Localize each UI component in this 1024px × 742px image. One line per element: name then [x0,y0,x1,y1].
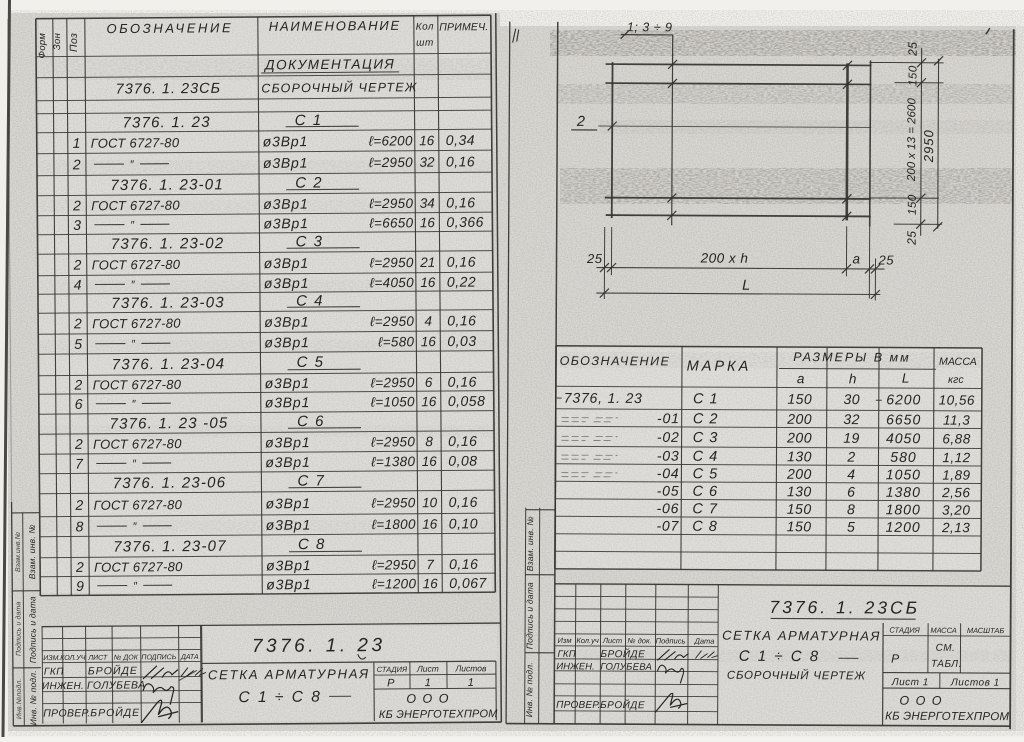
svg-text:С 5: С 5 [297,354,325,371]
svg-text:″: ″ [132,398,137,410]
svg-text:С 1 ÷ С 8: С 1 ÷ С 8 [238,688,322,706]
svg-text:8: 8 [847,501,855,517]
svg-text:4: 4 [424,314,432,329]
svg-text:9: 9 [76,578,84,594]
svg-text:РАЗМЕРЫ В мм: РАЗМЕРЫ В мм [793,350,910,365]
svg-text:ГКП: ГКП [557,649,576,660]
svg-text:ОБОЗНАЧЕНИЕ: ОБОЗНАЧЕНИЕ [560,354,671,369]
svg-text:7376. 1. 23 -05: 7376. 1. 23 -05 [109,415,228,433]
svg-text:0,22: 0,22 [447,274,476,290]
svg-text:2,13: 2,13 [941,520,970,535]
svg-text:″: ″ [132,458,137,470]
svg-text:0,34: 0,34 [446,132,475,148]
svg-text:0,16: 0,16 [448,374,477,390]
svg-text:10: 10 [422,495,438,510]
svg-text:-05: -05 [657,483,680,499]
svg-text:L: L [902,371,910,386]
svg-text:ГОСТ 6727-80: ГОСТ 6727-80 [92,316,181,332]
svg-text:Форм: Форм [37,33,48,59]
svg-text:150: 150 [787,518,812,534]
svg-text:КОЛ.УЧ: КОЛ.УЧ [60,655,86,662]
svg-text:2,56: 2,56 [941,485,970,500]
svg-text:2: 2 [73,315,82,331]
svg-text:С 3: С 3 [693,430,719,446]
svg-text:150: 150 [787,391,812,407]
svg-text:7376. 1. 23-06: 7376. 1. 23-06 [113,474,227,492]
svg-text:ø3Вр1: ø3Вр1 [265,394,310,410]
svg-text:7376. 1. 23-03: 7376. 1. 23-03 [111,294,225,312]
svg-text:2: 2 [73,257,82,273]
svg-text:Лист: Лист [602,636,622,645]
svg-text:ИЗМ.: ИЗМ. [43,655,60,662]
svg-text:4: 4 [74,277,82,293]
svg-text:БРОЙДЕ: БРОЙДЕ [600,698,645,711]
svg-text:2: 2 [74,436,83,452]
svg-text:Зон: Зон [52,32,63,50]
svg-text:10,56: 10,56 [939,393,975,408]
svg-text:С 2: С 2 [693,411,719,427]
svg-text:ОБОЗНАЧЕНИЕ: ОБОЗНАЧЕНИЕ [106,20,233,36]
svg-text:4050: 4050 [886,430,921,446]
svg-text:Подпись и дата: Подпись и дата [27,596,38,663]
svg-text:ГОСТ 6727-80: ГОСТ 6727-80 [92,257,181,273]
svg-text:СЕТКА АРМАТУРНАЯ: СЕТКА АРМАТУРНАЯ [722,628,881,644]
svg-text:ГОСТ 6727-80: ГОСТ 6727-80 [93,377,182,393]
svg-text:8: 8 [76,518,84,534]
svg-text:ø3Вр1: ø3Вр1 [265,375,310,391]
svg-text:7376. 1. 23: 7376. 1. 23 [122,114,210,132]
svg-text:11,3: 11,3 [943,413,970,428]
svg-text:С 8: С 8 [298,536,326,553]
svg-text:16: 16 [423,576,439,591]
svg-text:7376. 1. 23-02: 7376. 1. 23-02 [111,235,225,253]
svg-text:1200: 1200 [886,519,921,535]
svg-text:МАРКА: МАРКА [687,358,752,374]
svg-text:МАССА: МАССА [939,356,977,368]
svg-text:Изм: Изм [558,636,572,645]
svg-text:25: 25 [877,252,894,267]
svg-text:2: 2 [576,114,586,130]
svg-text:200: 200 [786,430,812,446]
svg-text:0,16: 0,16 [446,153,475,169]
svg-text:0,16: 0,16 [447,254,476,270]
svg-text:16: 16 [422,517,438,532]
svg-text:150: 150 [787,501,812,517]
svg-text:1; 3 ÷ 9: 1; 3 ÷ 9 [627,20,673,34]
svg-text:130: 130 [787,448,812,464]
svg-text:a: a [797,371,805,386]
svg-text:ø3Вр1: ø3Вр1 [263,215,308,231]
svg-text:32: 32 [843,411,860,427]
svg-text:Подпись и дата: Подпись и дата [524,582,534,649]
svg-text:ø3Вр1: ø3Вр1 [264,255,309,271]
svg-text:ℓ=2950: ℓ=2950 [369,155,413,170]
svg-text:200: 200 [786,466,812,482]
svg-text:4: 4 [847,466,855,482]
svg-text:ℓ=2950: ℓ=2950 [370,255,414,270]
svg-text:Лист 1: Лист 1 [891,677,929,688]
svg-text:″: ″ [133,580,138,592]
svg-text:ℓ=1200: ℓ=1200 [372,576,416,591]
svg-text:580: 580 [890,449,916,465]
svg-text:ø3Вр1: ø3Вр1 [263,155,308,171]
svg-text:a: a [852,251,860,266]
svg-text:ГОСТ 6727-80: ГОСТ 6727-80 [91,135,180,151]
svg-text:0,16: 0,16 [446,194,475,210]
svg-text:-07: -07 [656,518,679,534]
svg-text:16: 16 [422,454,438,469]
svg-text:МАСШТАБ: МАСШТАБ [967,626,1005,635]
svg-text:Подпись и дата: Подпись и дата [14,602,22,656]
svg-text:Взам. инв. №: Взам. инв. № [27,524,37,579]
svg-text:7376. 1. 23-04: 7376. 1. 23-04 [112,355,226,373]
svg-text:7376. 1. 23СБ: 7376. 1. 23СБ [116,81,222,98]
svg-text:Лист: Лист [416,664,439,674]
svg-text:С 7: С 7 [692,501,718,517]
svg-text:0,067: 0,067 [449,575,487,591]
svg-text:ПРОВЕР.: ПРОВЕР. [556,700,600,711]
svg-text:ø3Вр1: ø3Вр1 [265,454,310,470]
svg-text:25: 25 [905,230,919,245]
svg-text:″: ″ [130,219,135,231]
svg-text:ℓ=6650: ℓ=6650 [369,215,413,230]
svg-text:ø3Вр1: ø3Вр1 [266,517,311,533]
svg-text:6650: 6650 [886,411,921,427]
svg-text:СМ.: СМ. [936,643,956,654]
svg-text:19: 19 [843,430,860,446]
svg-text:БРОЙДЕ: БРОЙДЕ [90,706,140,719]
svg-text:ø3Вр1: ø3Вр1 [266,495,311,511]
svg-text:С 4: С 4 [693,449,719,465]
svg-text:7376. 1. 23-01: 7376. 1. 23-01 [110,176,224,194]
svg-text:0,16: 0,16 [449,494,478,510]
svg-text:ℓ=1800: ℓ=1800 [372,517,416,532]
svg-text:0,03: 0,03 [447,333,476,349]
svg-text:7: 7 [75,456,84,472]
svg-text:″: ″ [131,338,136,350]
svg-text:16: 16 [420,215,436,230]
svg-text:6: 6 [425,375,433,390]
svg-text:ГОСТ 6727-80: ГОСТ 6727-80 [93,436,182,452]
svg-text:Взам. инв. №: Взам. инв. № [525,516,535,571]
svg-text:ГОЛУБЕВА: ГОЛУБЕВА [87,679,146,691]
svg-text:0,16: 0,16 [448,433,477,449]
svg-text:″: ″ [130,159,135,171]
svg-text:130: 130 [787,483,812,499]
svg-text:ИНЖЕН.: ИНЖЕН. [556,661,594,672]
svg-text:С 6: С 6 [692,484,718,500]
svg-text:Дата: Дата [694,637,715,646]
svg-text:СТАДИЯ: СТАДИЯ [889,626,920,635]
svg-text:С 1: С 1 [693,391,719,407]
svg-text:ø3Вр1: ø3Вр1 [265,434,310,450]
svg-text:кгс: кгс [948,374,964,386]
svg-text:2: 2 [72,197,81,213]
svg-text:ℓ=6200: ℓ=6200 [369,133,413,148]
svg-text:25: 25 [586,251,603,266]
svg-text:0,10: 0,10 [449,515,478,531]
svg-text:16: 16 [420,275,436,290]
svg-text:16: 16 [421,394,437,409]
svg-text:ø3Вр1: ø3Вр1 [263,133,308,149]
svg-text:ℓ=4050: ℓ=4050 [370,275,414,290]
svg-text:16: 16 [421,334,437,349]
svg-text:200: 200 [786,411,812,427]
svg-text:ТАБЛ.: ТАБЛ. [931,659,962,670]
svg-text:О О О: О О О [406,691,450,705]
svg-text:ℓ=2950: ℓ=2950 [372,557,416,572]
svg-text:ПРИМЕЧ.: ПРИМЕЧ. [439,21,488,33]
svg-text:2: 2 [74,497,83,513]
svg-text:Кол: Кол [416,22,434,33]
svg-text:ø3Вр1: ø3Вр1 [266,576,311,592]
svg-text:h: h [849,371,857,386]
svg-text:7376, 1. 23: 7376, 1. 23 [564,390,643,406]
svg-text:0,16: 0,16 [447,312,476,328]
svg-text:-04: -04 [657,465,680,481]
svg-text:ø3Вр1: ø3Вр1 [266,557,311,573]
svg-text:6200: 6200 [886,391,921,407]
svg-text:1,12: 1,12 [942,450,970,465]
svg-text:34: 34 [420,196,435,211]
svg-text:НАИМЕНОВАНИЕ: НАИМЕНОВАНИЕ [269,18,401,34]
svg-text:ПОДПИСЬ: ПОДПИСЬ [141,654,176,661]
svg-text:Р: Р [891,652,900,666]
svg-text:7376. 1. 23: 7376. 1. 23 [252,635,386,657]
svg-text:КБ ЭНЕРГОТЕХПРОМ: КБ ЭНЕРГОТЕХПРОМ [885,711,1009,724]
svg-text:1,89: 1,89 [942,468,970,483]
svg-text:1: 1 [425,677,432,689]
svg-text:Инв.№подл.: Инв.№подл. [15,679,23,720]
svg-text:2: 2 [72,156,81,172]
svg-text:ГОСТ 6727-80: ГОСТ 6727-80 [94,497,183,513]
svg-text:МАССА: МАССА [930,626,956,635]
svg-text:СТАДИЯ: СТАДИЯ [377,665,408,674]
svg-text:1380: 1380 [886,484,921,500]
svg-text:№ док.: № док. [627,636,651,645]
svg-text:ℓ=2950: ℓ=2950 [371,375,415,390]
svg-text:БРОЙДЕ: БРОЙДЕ [88,664,138,677]
svg-text:С 8: С 8 [692,519,718,535]
svg-text:Поз: Поз [68,33,80,52]
svg-text:ДОКУМЕНТАЦИЯ: ДОКУМЕНТАЦИЯ [263,56,395,72]
svg-text:2: 2 [73,377,82,393]
svg-text:0,16: 0,16 [449,556,478,572]
svg-text:Инв. № подл.: Инв. № подл. [28,670,38,725]
svg-text:7376. 1. 23-07: 7376. 1. 23-07 [113,538,227,556]
svg-text:″: ″ [131,279,136,291]
svg-text:ГОСТ 6727-80: ГОСТ 6727-80 [91,198,180,214]
svg-text:Р: Р [387,677,395,689]
svg-text:-03: -03 [657,448,680,464]
svg-text:О О О: О О О [899,694,943,708]
svg-text:ГОСТ 6727-80: ГОСТ 6727-80 [94,559,183,575]
svg-text:0,366: 0,366 [446,214,484,230]
svg-text:Листов: Листов [454,663,487,673]
svg-text:0,08: 0,08 [448,453,477,469]
svg-text:Кол.уч: Кол.уч [576,636,599,645]
svg-text:16: 16 [419,133,435,148]
svg-text:БРОЙДЕ: БРОЙДЕ [600,647,645,660]
svg-text:″: ″ [133,521,138,533]
svg-text:-06: -06 [657,500,680,516]
svg-text:150: 150 [907,194,919,215]
svg-text:ø3Вр1: ø3Вр1 [264,334,309,350]
svg-text:Листов 1: Листов 1 [950,677,1000,688]
svg-text:ГОЛУБЕВА: ГОЛУБЕВА [600,662,652,673]
svg-text:ИНЖЕН.: ИНЖЕН. [42,681,84,692]
svg-text:8: 8 [425,434,433,449]
svg-text:6: 6 [75,396,83,412]
svg-text:ДАТА: ДАТА [180,654,199,661]
svg-text:Взам.инв.№: Взам.инв.№ [15,531,22,572]
svg-text:2: 2 [75,559,84,575]
svg-text:30: 30 [843,391,860,407]
svg-text:0,058: 0,058 [448,393,486,409]
svg-text:Инв. № подл.: Инв. № подл. [524,662,534,717]
svg-text:ПРОВЕР.: ПРОВЕР. [43,707,90,719]
svg-text:ℓ=2950: ℓ=2950 [371,495,415,510]
svg-text:L: L [742,278,751,294]
svg-text:ø3Вр1: ø3Вр1 [263,196,308,212]
svg-text:С 5: С 5 [693,466,719,482]
svg-text:7: 7 [426,557,434,572]
svg-text:1800: 1800 [886,501,921,517]
svg-text:ℓ=2950: ℓ=2950 [371,434,415,449]
svg-text:-01: -01 [657,410,680,426]
svg-text:21: 21 [419,255,435,270]
svg-text:шт: шт [416,38,434,49]
svg-text:5: 5 [847,519,855,535]
svg-text:150: 150 [907,65,919,86]
svg-text:3: 3 [73,217,81,233]
svg-text:1: 1 [468,677,475,689]
svg-text:Подпись: Подпись [656,636,686,645]
svg-text:ℓ=1380: ℓ=1380 [371,454,415,469]
svg-text:ℓ=580: ℓ=580 [378,334,415,349]
svg-text:ЛИСТ: ЛИСТ [87,655,108,662]
svg-text:ø3Вр1: ø3Вр1 [264,314,309,330]
svg-text:32: 32 [419,155,435,170]
svg-text:3,20: 3,20 [942,503,970,518]
svg-text:ℓ=1050: ℓ=1050 [371,394,415,409]
svg-text:№ ДОК: № ДОК [114,654,139,661]
svg-text:2950: 2950 [921,129,936,163]
svg-text:СБОРОЧНЫЙ ЧЕРТЕЖ: СБОРОЧНЫЙ ЧЕРТЕЖ [261,78,418,95]
svg-text:СБОРОЧНЫЙ ЧЕРТЕЖ: СБОРОЧНЫЙ ЧЕРТЕЖ [727,669,867,683]
svg-text:ГКП: ГКП [44,667,64,678]
svg-text:7376. 1. 23СБ: 7376. 1. 23СБ [769,597,920,618]
svg-text:200 х h: 200 х h [700,251,749,266]
svg-text:1: 1 [73,135,81,151]
svg-text:СЕТКА АРМАТУРНАЯ: СЕТКА АРМАТУРНАЯ [208,666,370,682]
svg-text:6: 6 [847,484,855,500]
svg-text:25: 25 [906,41,920,56]
svg-text:2: 2 [846,449,855,465]
svg-text:6,88: 6,88 [942,431,970,446]
svg-text:5: 5 [74,336,82,352]
svg-text:ℓ=2950: ℓ=2950 [370,314,414,329]
svg-text:ℓ=2950: ℓ=2950 [369,196,413,211]
svg-text:С 1 ÷ С 8: С 1 ÷ С 8 [739,648,820,665]
svg-text:1050: 1050 [886,466,921,482]
svg-text:КБ ЭНЕРГОТЕХПРОМ: КБ ЭНЕРГОТЕХПРОМ [379,708,498,721]
svg-text:ø3Вр1: ø3Вр1 [264,275,309,291]
svg-text:-02: -02 [657,429,680,445]
svg-text:200 х 13 = 2600: 200 х 13 = 2600 [906,98,918,182]
